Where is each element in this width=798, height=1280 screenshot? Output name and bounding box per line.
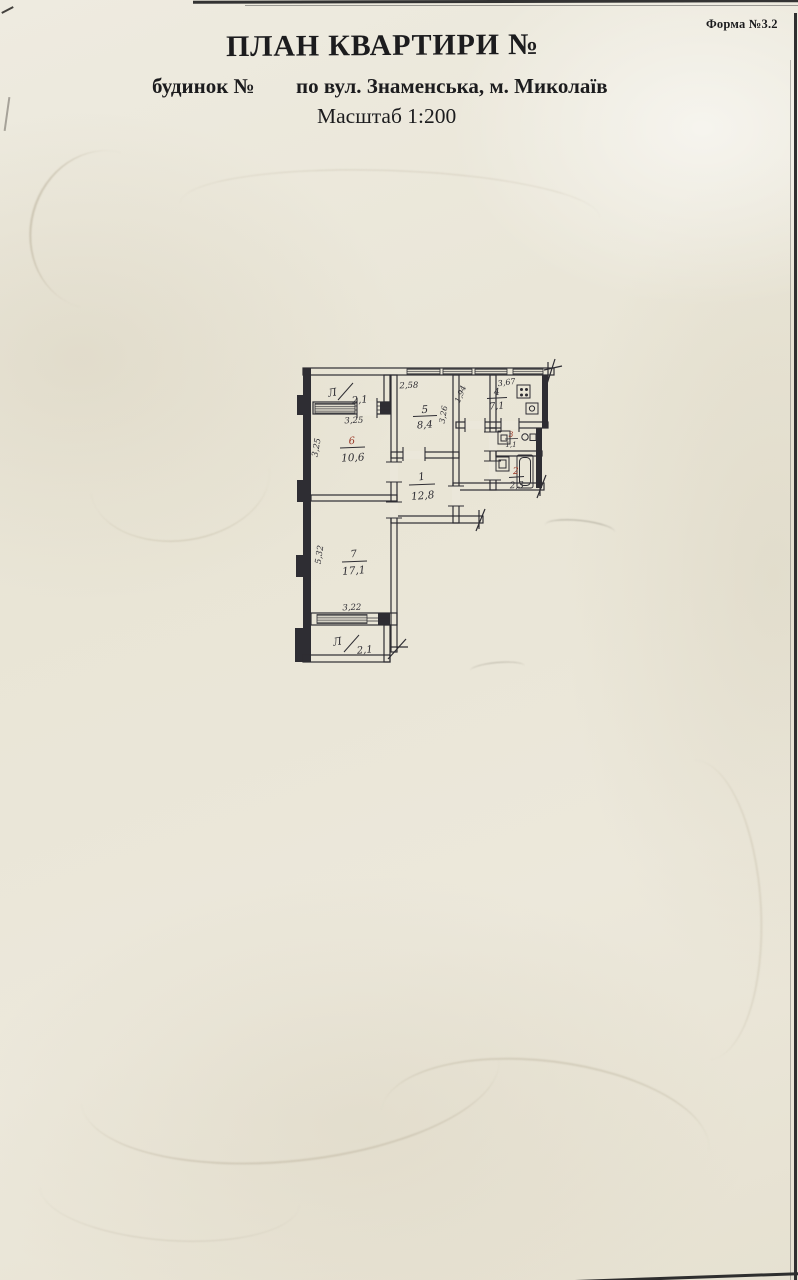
page-title: ПЛАН КВАРТИРИ № [226,28,539,64]
dim-hall-width: 1,94 [453,384,468,404]
svg-text:12,8: 12,8 [411,489,436,503]
dim-room7-left: 5,32 [314,545,327,565]
room-label-1: 1 12,8 [409,471,435,503]
svg-text:Л: Л [331,635,343,649]
scale-label: Масштаб 1:200 [317,104,456,129]
paper-crease [82,408,277,553]
dim-room5-top: 2,58 [398,381,419,392]
svg-text:3: 3 [509,430,514,439]
svg-text:10,6: 10,6 [341,451,365,464]
scan-edge-bottom [552,1272,798,1280]
svg-text:5: 5 [421,404,429,416]
svg-text:7,1: 7,1 [489,400,505,412]
paper-crease [12,134,191,325]
paper-crease [632,757,770,1063]
form-number-label: Форма №3.2 [706,17,778,32]
svg-text:2,1: 2,1 [350,394,368,406]
pen-mark [1,6,13,14]
svg-text:2,1: 2,1 [355,644,373,656]
room-label-6: 6 10,6 [340,436,365,465]
break-marks [388,359,562,659]
svg-text:Л: Л [326,386,338,400]
paper-crease [37,1141,303,1250]
building-number-label: будинок № [152,74,255,99]
dim-kitchen-top: 3,67 [497,377,517,389]
scan-edge-right-thin [790,60,791,1280]
paper-crease [373,1040,718,1221]
svg-text:8,4: 8,4 [417,419,434,431]
dim-room6-left: 3,25 [310,437,323,457]
scan-edge-top-thin [245,5,798,6]
svg-text:6: 6 [348,436,356,447]
paper-crease [73,978,508,1183]
faucet-icon [522,434,536,441]
floor-plan-drawing: Л 2,1 5 8,4 4 7,1 6 10,6 1 [292,355,564,677]
svg-text:17,1: 17,1 [342,564,366,578]
kitchen-sink-icon [526,403,538,414]
svg-text:1,1: 1,1 [505,441,516,449]
room-label-7: 7 17,1 [342,549,367,578]
scan-edge-right [794,13,797,1280]
svg-text:7: 7 [350,549,358,561]
stove-icon [517,385,530,398]
paper-crease [179,163,602,259]
svg-text:1: 1 [417,471,425,484]
svg-text:2: 2 [512,466,520,477]
dim-loggia-top-width: 3,25 [344,416,363,427]
dim-room5-right: 3,26 [438,405,450,424]
dim-room7-bottom: 3,22 [342,603,361,614]
scan-edge-top [193,0,798,4]
scanned-document-page: Форма №3.2 ПЛАН КВАРТИРИ № будинок № по … [0,0,798,1280]
room-label-5: 5 8,4 [413,404,437,432]
address-label: по вул. Знаменська, м. Миколаїв [296,74,608,99]
room-label-loggia-bottom: Л 2,1 [331,635,373,657]
svg-text:4: 4 [492,387,500,399]
svg-text:2,3: 2,3 [508,481,524,492]
washbasin-icon [496,457,509,471]
pen-mark-left [4,97,11,131]
